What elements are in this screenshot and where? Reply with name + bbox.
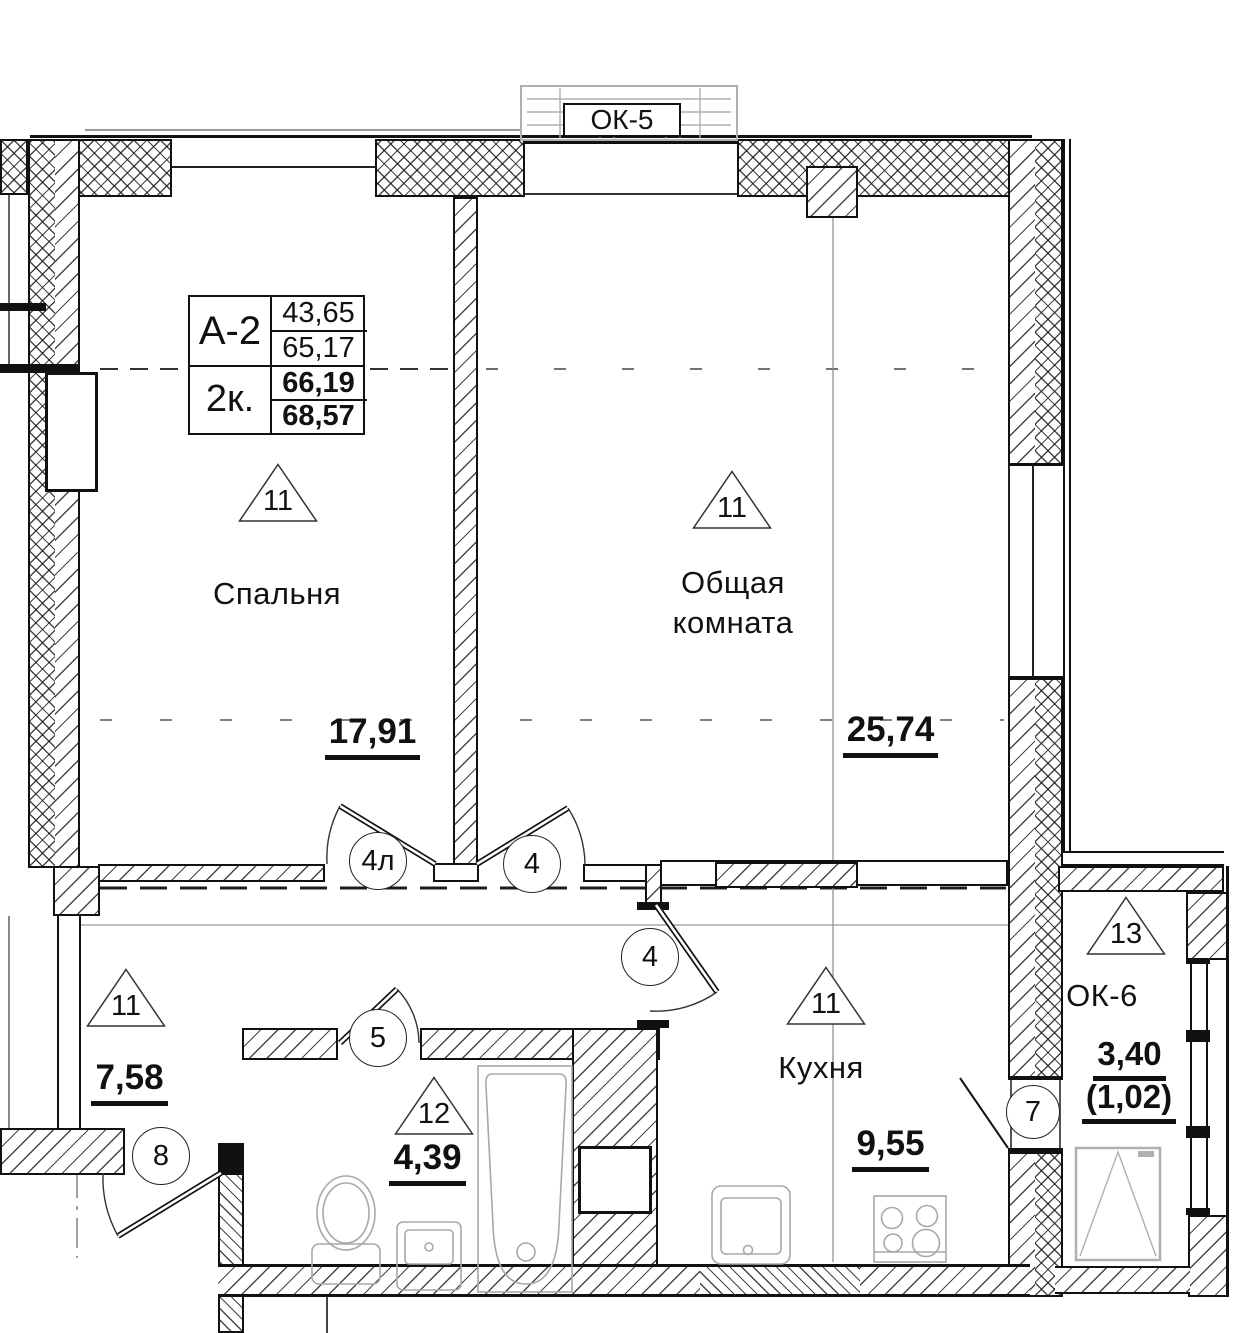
balcony-door-cap-top — [1008, 1076, 1063, 1080]
door-mark-kitchen: 4 — [621, 928, 679, 986]
balcony-bottom-wall — [1055, 1266, 1190, 1294]
apartment-type-cell: А-2 — [190, 297, 270, 365]
balcony-frame-line2 — [1206, 960, 1208, 1215]
ok5-inner-line — [525, 193, 737, 195]
exterior-wall-left — [28, 139, 80, 868]
hall-corner-block — [53, 866, 100, 916]
left-rail-line — [8, 195, 10, 368]
zone-triangle-bath: 12 — [394, 1076, 474, 1136]
pilaster-block — [806, 166, 858, 218]
area-value-2: 65,17 — [272, 332, 365, 365]
exterior-wall-top-right — [737, 139, 1032, 197]
living-area: 25,74 — [823, 710, 958, 758]
left-wall-niche — [45, 372, 98, 492]
stove — [874, 1196, 946, 1262]
bath-top-wall-left — [242, 1028, 338, 1060]
area-value-4: 68,57 — [272, 401, 365, 432]
top-outer-face-line — [85, 129, 520, 131]
zone-triangle-bedroom: 11 — [238, 463, 318, 523]
left-stub-wall — [0, 139, 28, 195]
kitchen-door-cap-top — [637, 902, 669, 910]
bottom-wall-dense-section — [700, 1267, 860, 1294]
bottom-wall — [218, 1264, 1030, 1297]
top-wall-outer-line — [30, 135, 1032, 138]
kitchen-top-wall-block — [715, 862, 858, 888]
left-rail-line2 — [8, 916, 10, 1130]
balcony-outer-line — [1226, 866, 1229, 1297]
apartment-info-table: А-2 2к. 43,65 65,17 66,19 68,57 — [188, 295, 365, 435]
bedroom-name: Спальня — [177, 576, 377, 612]
balcony-frame-mullion1 — [1186, 1030, 1210, 1042]
zone-triangle-kitchen: 11 — [786, 966, 866, 1026]
hall-top-wall — [98, 864, 325, 882]
bedroom-area: 17,91 — [305, 712, 440, 760]
ok5-sill-line — [525, 141, 737, 144]
bath-area: 4,39 — [360, 1138, 495, 1186]
ok5-label: ОК-5 — [591, 104, 654, 136]
balcony-top-wall — [1058, 866, 1224, 892]
left-slab-bar1 — [0, 303, 46, 311]
door-mark-living: 4 — [503, 835, 561, 893]
kitchen-sink — [712, 1186, 790, 1264]
area-value-3: 66,19 — [272, 367, 365, 399]
entrance-wall — [0, 1128, 125, 1175]
floor-plan: ОК-5 А-2 2к. 43,65 65,17 66,19 68,57 11 … — [0, 0, 1257, 1333]
right-window-frame-line2 — [1032, 465, 1034, 678]
bedroom-living-wall — [453, 197, 478, 865]
balcony-top-wall-outer — [1063, 851, 1224, 866]
balcony-area-reduced: (1,02) — [1059, 1078, 1199, 1124]
hall-area: 7,58 — [62, 1058, 197, 1106]
balcony-frame-mullion2 — [1186, 1126, 1210, 1138]
ok6-label: ОК-6 — [1032, 978, 1172, 1014]
zone-triangle-balcony: 13 — [1086, 896, 1166, 956]
ok6-window-symbol — [1076, 1148, 1160, 1260]
door-mark-bedroom: 4л — [349, 832, 407, 890]
zone-triangle-hall: 11 — [86, 968, 166, 1028]
door-mark-bath: 5 — [349, 1009, 407, 1067]
balcony-right-block-top — [1186, 892, 1228, 960]
door-mark-balcony: 7 — [1006, 1085, 1060, 1139]
door-mark-entrance: 8 — [132, 1127, 190, 1185]
exterior-wall-right-upper — [1008, 139, 1063, 465]
kitchen-name: Кухня — [721, 1050, 921, 1086]
kitchen-area: 9,55 — [823, 1124, 958, 1172]
balcony-frame-cap-bottom — [1186, 1208, 1210, 1215]
balcony-door-leaf — [960, 1078, 1008, 1148]
bedroom-living-wall-foot — [433, 863, 479, 882]
balcony-right-block-bottom — [1188, 1215, 1228, 1297]
balcony-area: 3,40 — [1072, 1035, 1187, 1081]
rooms-count-cell: 2к. — [190, 367, 270, 432]
right-window-frame-line1 — [1008, 465, 1010, 678]
exterior-wall-top-mid — [375, 139, 525, 197]
right-facade-double-line — [1063, 139, 1071, 866]
bedroom-window-line — [172, 166, 375, 168]
bath-left-wall-cap — [218, 1143, 244, 1175]
living-room-name: Общая комната — [633, 563, 833, 643]
ok5-label-box: ОК-5 — [563, 103, 681, 137]
kitchen-door-cap-bottom — [637, 1020, 669, 1028]
vent-shaft — [578, 1146, 652, 1214]
below-wall-line — [326, 1297, 328, 1333]
zone-triangle-living: 11 — [692, 470, 772, 530]
right-window-cap-top — [1008, 463, 1065, 466]
exterior-wall-right-lower — [1008, 678, 1063, 1080]
area-value-1: 43,65 — [272, 297, 365, 330]
